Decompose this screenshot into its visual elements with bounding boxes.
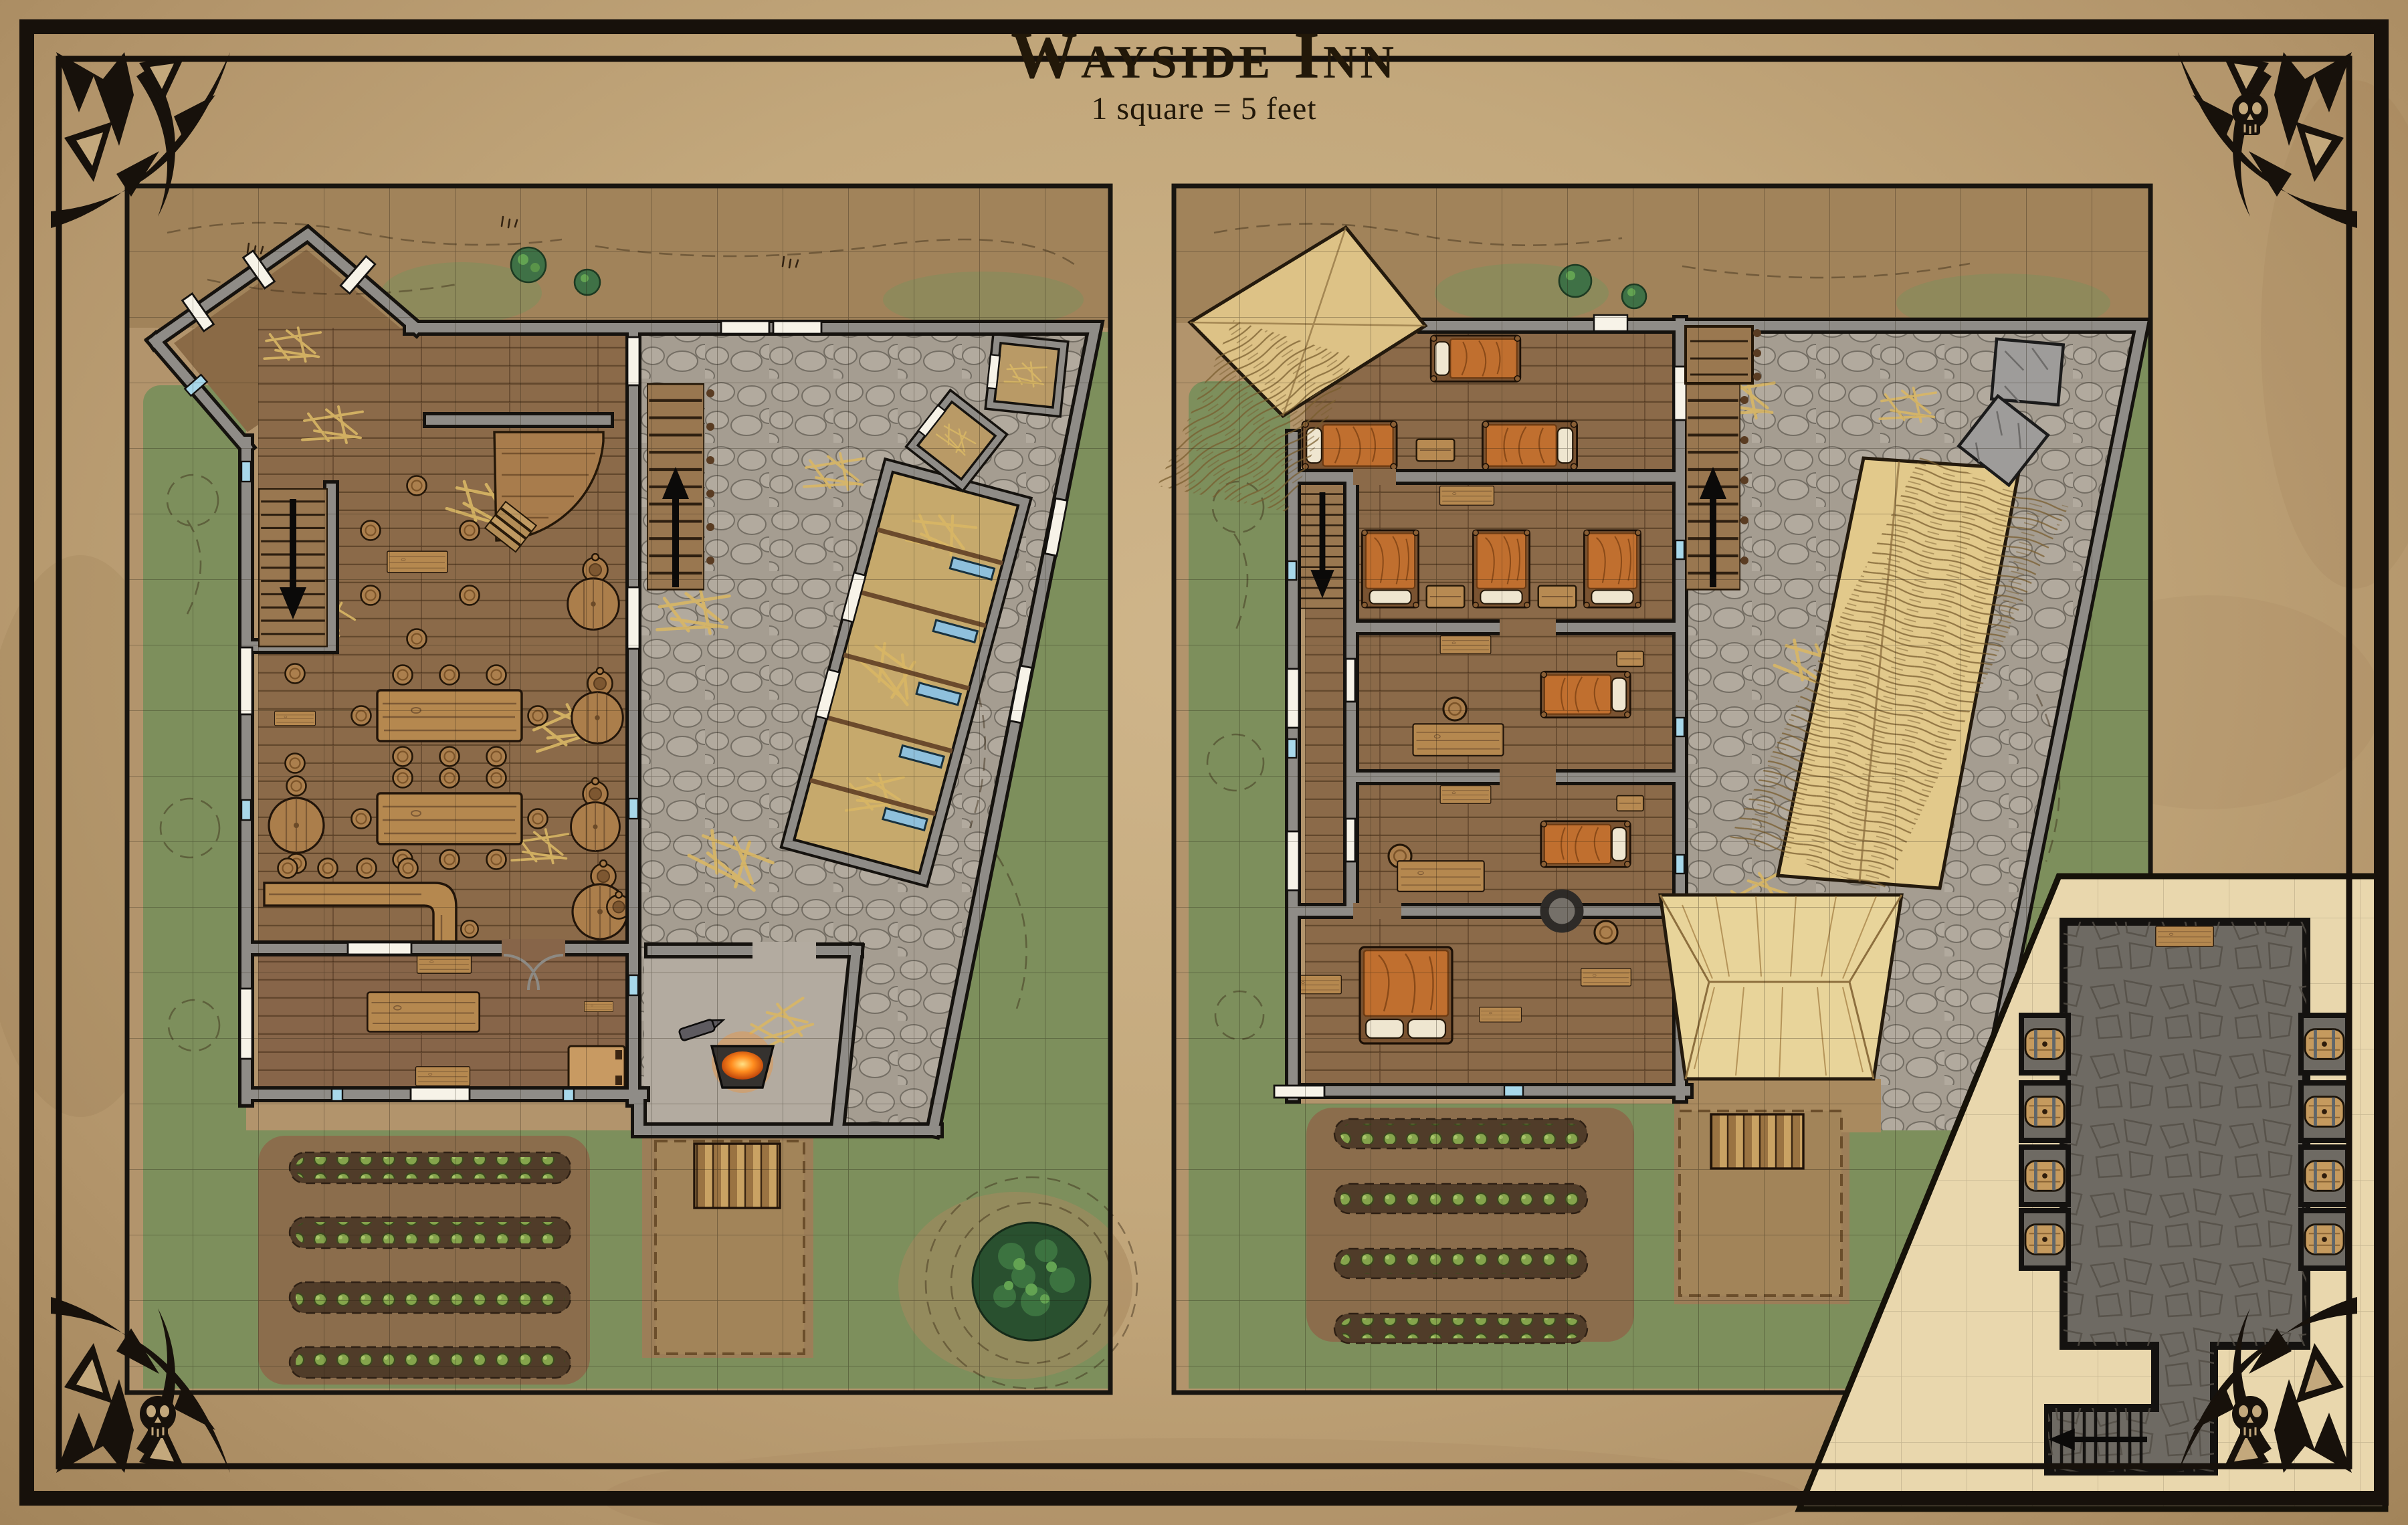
barrel	[2305, 1097, 2344, 1127]
scale-note: 1 square = 5 feet	[0, 90, 2408, 127]
barrel	[2305, 1029, 2344, 1059]
barrel	[2305, 1225, 2344, 1255]
ground-floor-map	[127, 186, 1137, 1393]
map-sheet: Wayside Inn 1 square = 5 feet	[0, 0, 2408, 1525]
barrel	[2025, 1225, 2064, 1255]
barrel	[2025, 1161, 2064, 1191]
map-art	[0, 0, 2408, 1525]
barrel	[2025, 1097, 2064, 1127]
skull-icon	[140, 1396, 176, 1438]
map-header: Wayside Inn 1 square = 5 feet	[0, 20, 2408, 127]
barrel	[2305, 1161, 2344, 1191]
map-grid	[127, 186, 1110, 1393]
barrel	[2025, 1029, 2064, 1059]
page-title: Wayside Inn	[0, 20, 2408, 90]
cellar-shelf	[2156, 926, 2213, 946]
